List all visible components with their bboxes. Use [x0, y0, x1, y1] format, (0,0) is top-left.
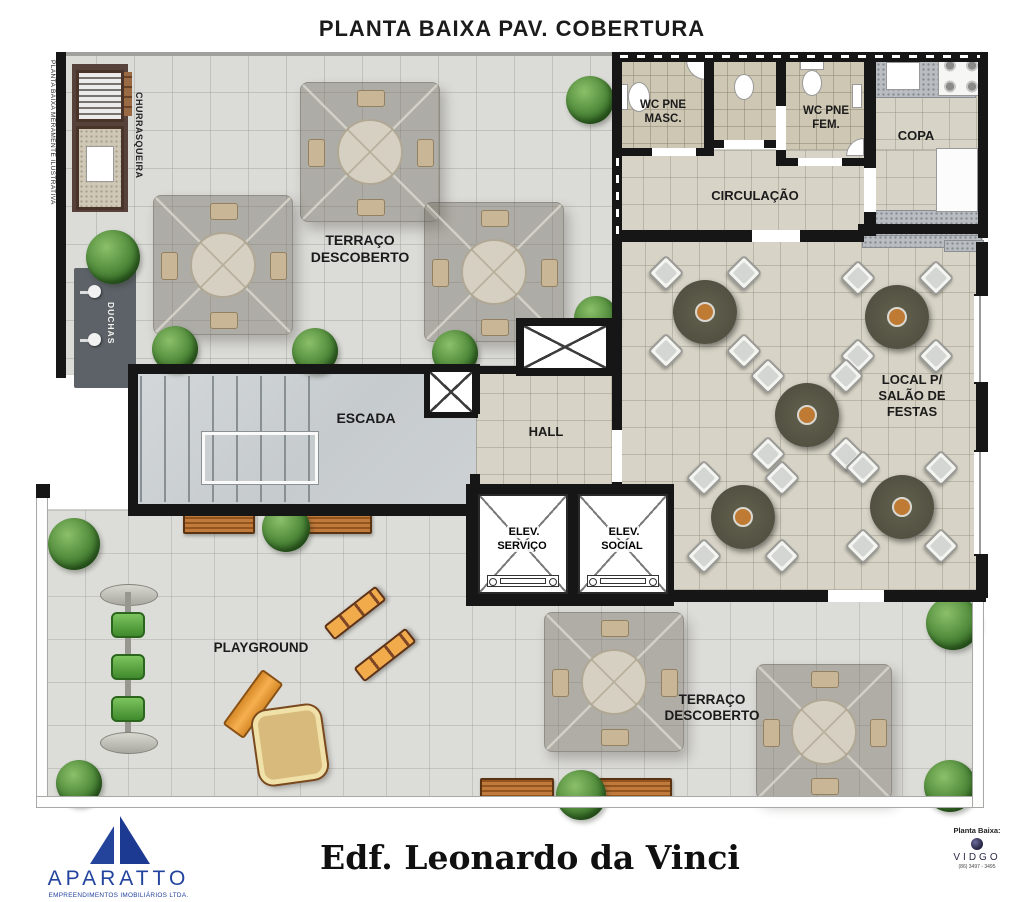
copa-label: COPA	[886, 128, 946, 144]
shrub	[86, 230, 140, 284]
terrace-chair	[811, 671, 839, 688]
chair	[923, 528, 960, 565]
shrub	[566, 76, 614, 124]
terrace-table	[190, 232, 256, 298]
terrace-chair	[481, 319, 509, 336]
play-seat	[111, 654, 145, 680]
umbrella-table	[544, 612, 684, 752]
terrace-chair	[417, 139, 434, 167]
elevator-service-label: ELEV. SERVIÇO	[480, 526, 566, 554]
playground-label: PLAYGROUND	[196, 640, 326, 656]
duchas-area: DUCHAS	[74, 268, 136, 388]
elevator-service-door-icon	[487, 575, 559, 587]
door-salao-south	[828, 590, 884, 602]
chair	[764, 460, 801, 497]
shower-head-icon	[88, 285, 101, 298]
building-name: Edf. Leonardo da Vinci	[18, 838, 1024, 877]
table-hub	[695, 302, 715, 322]
elevator-social-label: ELEV. SOCIAL	[580, 526, 666, 554]
vidgo-globe-icon	[971, 838, 983, 850]
disclaimer-label: PLANTA BAIXA MERAMENTE ILUSTRATIVA	[49, 60, 56, 205]
chair	[764, 538, 801, 575]
parapet-corner-stub	[36, 484, 50, 498]
shaft-x-icon-small	[430, 372, 472, 412]
party-table-set	[844, 449, 960, 565]
brick-ledge	[124, 72, 132, 116]
umbrella-table	[756, 664, 892, 800]
door-wc-masc	[652, 148, 696, 156]
table-hub	[797, 405, 817, 425]
wc-mid-floor	[710, 58, 780, 146]
escada-label: ESCADA	[316, 410, 416, 427]
wc-masc-label: WC PNE MASC.	[620, 98, 706, 126]
party-table-set	[647, 254, 763, 370]
churrasqueira-label: CHURRASQUEIRA	[134, 92, 144, 179]
terrace-chair	[601, 729, 629, 746]
chair	[840, 260, 877, 297]
door-salao-west	[612, 430, 622, 482]
umbrella-table	[153, 195, 293, 335]
elevator-service-cell: ELEV. SERVIÇO	[478, 494, 568, 594]
elevator-social-cell: ELEV. SOCIAL	[578, 494, 668, 594]
play-structure	[92, 584, 164, 754]
door-bar	[500, 578, 546, 584]
table-hub	[892, 497, 912, 517]
terrace-chair	[210, 203, 238, 220]
door-wc-fem-south	[798, 158, 842, 166]
door-wc-fem	[776, 106, 786, 150]
salao-label: LOCAL P/ SALÃO DE FESTAS	[852, 372, 972, 420]
chair	[686, 460, 723, 497]
chair	[923, 450, 960, 487]
shrub	[48, 518, 100, 570]
circulation-label: CIRCULAÇÃO	[690, 188, 820, 204]
door-wc-mid	[724, 140, 764, 148]
window-salao-east-2	[974, 450, 988, 556]
play-seat	[111, 696, 145, 722]
credit-phone: (86) 3497 - 3495	[938, 864, 1016, 870]
page-title: PLANTA BAIXA PAV. COBERTURA	[0, 16, 1024, 43]
door-copa	[864, 168, 876, 212]
terrace-chair	[870, 719, 887, 747]
wall-north-dashes	[620, 55, 980, 58]
terrace-table	[461, 239, 527, 305]
wall-stairs-south	[128, 504, 480, 516]
grill-icon	[76, 70, 124, 122]
toilet-icon	[802, 70, 822, 96]
duchas-label: DUCHAS	[106, 302, 116, 344]
hall-label: HALL	[520, 424, 572, 440]
terrace-table	[337, 119, 403, 185]
terrace-chair	[601, 620, 629, 637]
copa-sink-icon	[886, 62, 920, 90]
churrasqueira-sink-icon	[86, 146, 114, 182]
sandbox	[251, 704, 329, 787]
wall-copa-salao	[858, 224, 986, 234]
chair	[726, 255, 763, 292]
party-table-set	[685, 459, 801, 575]
wall-terrace-west	[56, 52, 66, 378]
terrace-chair	[210, 312, 238, 329]
credit-studio: VIDGO	[938, 852, 1016, 863]
terrace-table	[581, 649, 647, 715]
terrace-table	[791, 699, 857, 765]
chair	[750, 358, 787, 395]
chair	[648, 333, 685, 370]
terrace-chair	[357, 199, 385, 216]
shower-head-icon	[88, 333, 101, 346]
terrace-chair	[161, 252, 178, 280]
shrub	[556, 770, 606, 820]
terrace-chair	[357, 90, 385, 107]
chair	[918, 338, 955, 375]
play-disc	[100, 732, 158, 754]
table-hub	[733, 507, 753, 527]
wall-salao-north-b	[800, 230, 864, 242]
chair	[845, 450, 882, 487]
terrace-top-edge	[58, 52, 620, 56]
parapet-west	[36, 484, 48, 808]
door-bar	[600, 578, 646, 584]
wall-copa-east	[978, 52, 988, 238]
terrace-chair	[541, 259, 558, 287]
terrace-chair	[552, 669, 569, 697]
terrace-chair	[308, 139, 325, 167]
wall-stairs-west	[128, 364, 138, 514]
copa-cabinet	[936, 148, 978, 212]
chair	[648, 255, 685, 292]
stair-rail	[202, 432, 318, 484]
floor-plan-page: PLANTA BAIXA PAV. COBERTURA	[0, 0, 1024, 902]
play-seat	[111, 612, 145, 638]
umbrella-table	[300, 82, 440, 222]
elevator-social-door-icon	[587, 575, 659, 587]
wall-terrace-circ-dashes	[616, 158, 619, 234]
window-salao-east-1	[974, 294, 988, 384]
plan-credit: Planta Baixa: VIDGO (86) 3497 - 3495	[938, 826, 1016, 870]
wc-fem-label: WC PNE FEM.	[786, 104, 866, 132]
chair	[845, 528, 882, 565]
chair	[918, 260, 955, 297]
table-hub	[887, 307, 907, 327]
shaft-x-icon-large	[524, 326, 606, 368]
chair	[686, 538, 723, 575]
credit-label: Planta Baixa:	[938, 826, 1016, 835]
parapet-east	[972, 598, 984, 808]
developer-subtitle: EMPREENDIMENTOS IMOBILIÁRIOS LTDA.	[26, 892, 211, 899]
terrace-bottom-label: TERRAÇO DESCOBERTO	[652, 692, 772, 725]
wall-salao-north-a	[612, 230, 752, 242]
terrace-chair	[481, 210, 509, 227]
terrace-chair	[811, 778, 839, 795]
terrace-top-label: TERRAÇO DESCOBERTO	[280, 232, 440, 266]
sink-icon	[734, 74, 754, 100]
parapet-south	[36, 796, 984, 808]
door-salao-north	[752, 230, 800, 242]
